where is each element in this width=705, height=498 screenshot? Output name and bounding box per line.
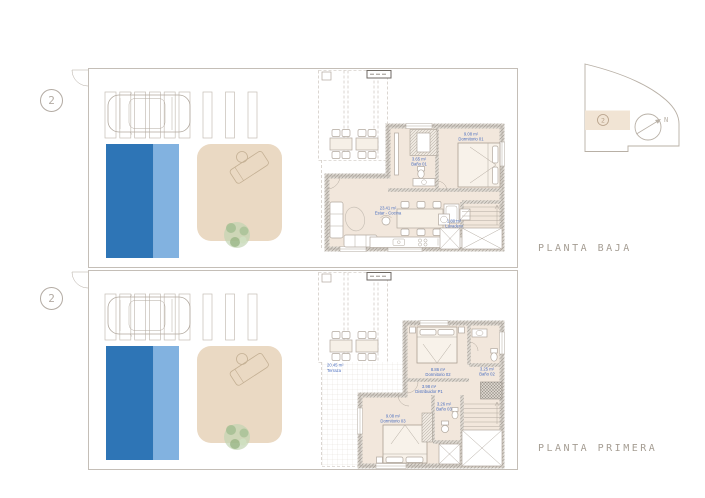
label-bedroom3-name: Dormitorio 03 — [380, 419, 406, 424]
first-floor-plan: 20.45 m² Terraza 8.86 m² Dormitorio 02 3… — [88, 270, 518, 470]
pool-deep — [106, 144, 153, 258]
unit-number-badge-first: 2 — [40, 287, 63, 310]
shower — [481, 382, 503, 399]
label-terrace-area: 20.45 m² — [327, 363, 344, 368]
label-living-name: Estar - Cocina — [375, 211, 402, 216]
carport-paving — [105, 294, 257, 340]
carport-paving — [105, 92, 257, 138]
kitchen-cabinet — [460, 209, 470, 220]
label-terrace-name: Terraza — [327, 368, 342, 373]
pool-deep — [106, 346, 153, 460]
door-leaf — [395, 133, 399, 175]
keyplan-site-outline — [585, 64, 679, 152]
unit-number-text: 2 — [48, 292, 55, 305]
porch-post — [322, 274, 331, 282]
label-hall-name: Distribuidor P1 — [415, 389, 443, 394]
car — [108, 295, 190, 337]
outdoor-dining — [330, 130, 378, 159]
keyplan-unit-highlight — [585, 111, 630, 131]
porch-post — [322, 72, 331, 80]
ground-floor-plan: 23.41 m² Estar - Cocina 3.65 m² Baño 01 … — [88, 68, 518, 268]
tree — [224, 222, 250, 248]
label-laundry-name: Lavadero — [445, 224, 463, 229]
plan-title-first: PLANTA PRIMERA — [538, 443, 657, 454]
car — [108, 93, 190, 135]
tree — [224, 424, 250, 450]
label-bedroom2-name: Dormitorio 02 — [425, 372, 451, 377]
pool-shallow — [153, 144, 179, 258]
label-bedroom1-name: Dormitorio 01 — [458, 137, 484, 142]
bed-double-2 — [410, 327, 465, 363]
dining-table — [397, 202, 443, 236]
key-plan: 2 N — [580, 58, 700, 162]
house-ground-floor: 23.41 m² Estar - Cocina 3.65 m² Baño 01 … — [327, 124, 505, 252]
wardrobe — [422, 413, 433, 442]
outdoor-dining — [330, 332, 378, 361]
north-label: N — [664, 116, 668, 124]
keyplan-unit-number: 2 — [601, 116, 605, 124]
label-bath3-name: Baño 03 — [436, 407, 452, 412]
unit-number-badge-ground: 2 — [40, 89, 63, 112]
drawing-sheet: 2 2 — [0, 0, 705, 498]
label-bath1-name: Baño 01 — [411, 162, 427, 167]
entry-gate — [72, 70, 88, 86]
porch — [319, 71, 392, 161]
entry-gate — [72, 272, 88, 288]
label-bath2-name: Baño 02 — [479, 372, 495, 377]
plan-title-ground: PLANTA BAJA — [538, 243, 632, 254]
pool-shallow — [153, 346, 179, 460]
porch — [319, 273, 392, 363]
bed-double — [458, 143, 500, 187]
unit-number-text: 2 — [48, 94, 55, 107]
bed-double-3 — [377, 425, 428, 463]
